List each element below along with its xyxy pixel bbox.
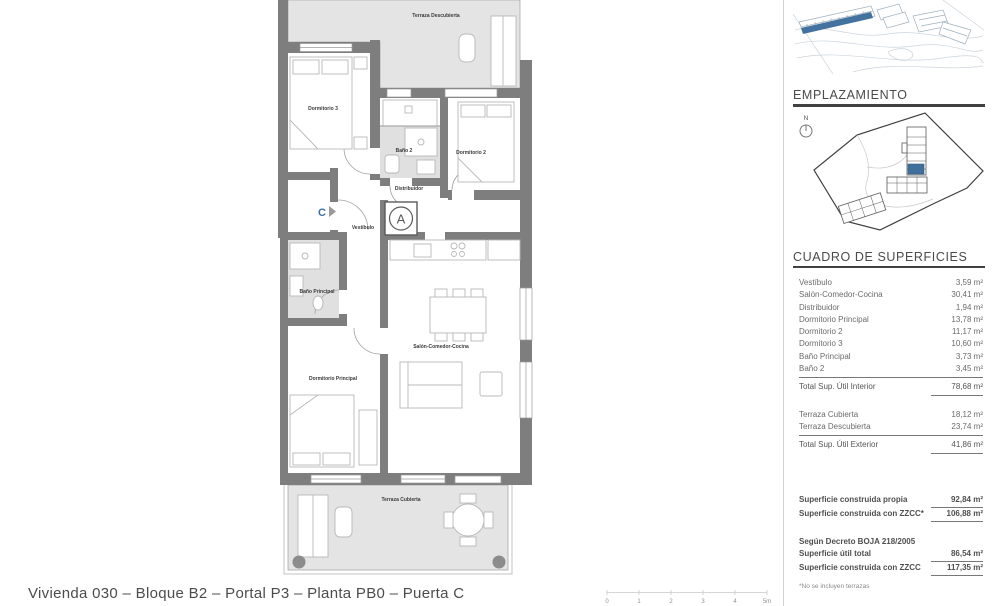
entrance-arrow-icon: [329, 206, 336, 217]
row-label: Superficie construida con ZZCC: [799, 562, 921, 574]
surface-table: Vestíbulo 3,59 m² Salón-Comedor-Cocina 3…: [793, 277, 985, 454]
row-value: 3,73 m²: [931, 351, 983, 363]
site-buildings: [838, 127, 927, 224]
row-label: Dormitorio Principal: [799, 314, 869, 326]
table-row: Distribuidor 1,94 m²: [799, 302, 983, 314]
row-label: Total Sup. Útil Interior: [799, 381, 875, 393]
side-table-icon: [459, 34, 475, 62]
bed-icon: [290, 57, 367, 149]
room-label-bano-principal: Baño Principal: [299, 289, 335, 295]
table-row: Dormitorio 3 10,60 m²: [799, 338, 983, 350]
row-label: Superficie construida propia: [799, 494, 907, 506]
spacer: [799, 396, 983, 409]
superficies-title: CUADRO DE SUPERFICIES: [793, 250, 985, 264]
table-row: Dormitorio Principal 13,78 m²: [799, 314, 983, 326]
row-value: 78,68 m²: [931, 381, 983, 395]
floorplan-sheet: A C Terraza Descubierta Dormitorio 3 Bañ…: [0, 0, 1001, 606]
site-boundary: [814, 113, 983, 230]
row-value: 23,74 m²: [931, 421, 983, 433]
room-label-bano-2: Baño 2: [396, 148, 413, 154]
row-label: Salón-Comedor-Cocina: [799, 289, 883, 301]
coffee-table-icon: [335, 507, 352, 537]
row-value: 30,41 m²: [931, 289, 983, 301]
row-label: Terraza Descubierta: [799, 421, 871, 433]
summary-row: Superficie útil total 86,54 m²: [799, 548, 983, 562]
table-row: Dormitorio 2 11,17 m²: [799, 326, 983, 338]
row-value: 1,94 m²: [931, 302, 983, 314]
dining-table-icon: [430, 289, 486, 341]
table-row: Terraza Cubierta 18,12 m²: [799, 409, 983, 421]
row-value: 3,59 m²: [931, 277, 983, 289]
row-label: Dormitorio 3: [799, 338, 843, 350]
kitchen-sink-icon: [414, 244, 431, 257]
scale-label: 5m: [763, 599, 771, 605]
room-label-dormitorio-3: Dormitorio 3: [308, 106, 338, 112]
row-label: Baño Principal: [799, 351, 851, 363]
row-label: Superficie construida con ZZCC*: [799, 508, 924, 520]
table-row: Vestíbulo 3,59 m²: [799, 277, 983, 289]
unit-title: Vivienda 030 – Bloque B2 – Portal P3 – P…: [28, 585, 464, 602]
row-label: Terraza Cubierta: [799, 409, 858, 421]
summary-row: Superficie construida propia 92,84 m²: [799, 494, 983, 508]
row-value: 10,60 m²: [931, 338, 983, 350]
bed-icon: [458, 102, 514, 182]
table-row: Baño Principal 3,73 m²: [799, 351, 983, 363]
row-label: Total Sup. Útil Exterior: [799, 439, 878, 451]
row-value: 117,35 m²: [931, 562, 983, 576]
table-row: Salón-Comedor-Cocina 30,41 m²: [799, 289, 983, 301]
shaft-letter: A: [397, 212, 406, 227]
entrance-letter: C: [318, 207, 326, 219]
room-label-distribuidor: Distribuidor: [395, 186, 423, 192]
row-value: 41,86 m²: [931, 439, 983, 453]
table-row: Baño 2 3,45 m²: [799, 363, 983, 375]
entrance-marker: C: [318, 206, 336, 219]
row-value: 3,45 m²: [931, 363, 983, 375]
decreto-heading: Según Decreto BOJA 218/2005: [799, 536, 983, 548]
row-value: 13,78 m²: [931, 314, 983, 326]
title-underline: [793, 104, 985, 107]
shower-icon: [290, 243, 320, 269]
column-icon: [493, 556, 506, 569]
row-value: 18,12 m²: [931, 409, 983, 421]
site-map: N: [793, 111, 985, 236]
room-label-terraza-cubierta: Terraza Cubierta: [381, 497, 420, 503]
terrace-sofa-icon: [298, 495, 328, 557]
wardrobe-icon: [359, 410, 377, 465]
table-total-row: Total Sup. Útil Interior 78,68 m²: [799, 377, 983, 395]
room-label-dormitorio-2: Dormitorio 2: [456, 150, 486, 156]
emplazamiento-title: EMPLAZAMIENTO: [793, 88, 985, 102]
scale-label: 4: [733, 599, 737, 605]
toilet-icon: [385, 155, 399, 173]
scale-label: 0: [605, 599, 609, 605]
sidebar: EMPLAZAMIENTO N: [784, 0, 1001, 606]
north-arrow-icon: N: [800, 115, 812, 137]
room-label-dormitorio-principal: Dormitorio Principal: [309, 376, 358, 382]
row-label: Dormitorio 2: [799, 326, 843, 338]
summary-row: Superficie construida con ZZCC* 106,88 m…: [799, 508, 983, 522]
row-label: Baño 2: [799, 363, 824, 375]
kitchen-counter-icon: [390, 240, 520, 260]
lounge-sofa-icon: [491, 16, 516, 86]
row-value: 92,84 m²: [931, 494, 983, 508]
armchair-icon: [480, 372, 502, 396]
floor-plan: A C Terraza Descubierta Dormitorio 3 Bañ…: [273, 0, 535, 578]
north-label: N: [804, 115, 809, 122]
row-label: Distribuidor: [799, 302, 839, 314]
building-render-sketch: [793, 0, 985, 74]
scale-label: 1: [637, 599, 641, 605]
summary-row: Superficie construida con ZZCC 117,35 m²: [799, 562, 983, 576]
scale-ruler: [607, 590, 767, 595]
row-value: 11,17 m²: [931, 326, 983, 338]
built-surface-summary: Superficie construida propia 92,84 m² Su…: [793, 494, 985, 590]
column-icon: [293, 556, 306, 569]
room-label-terraza-descubierta: Terraza Descubierta: [412, 13, 460, 19]
title-underline: [793, 266, 985, 269]
toilet-icon: [313, 296, 323, 310]
shaft-symbol: A: [385, 202, 417, 235]
room-label-salon: Salón-Comedor-Cocina: [413, 344, 469, 350]
table-total-row: Total Sup. Útil Exterior 41,86 m²: [799, 435, 983, 453]
row-value: 106,88 m²: [931, 508, 983, 522]
row-label: Vestíbulo: [799, 277, 832, 289]
scale-label: 2: [669, 599, 673, 605]
room-label-vestibulo: Vestíbulo: [352, 225, 374, 231]
footnote: *No se incluyen terrazas: [799, 583, 983, 590]
highlighted-unit: [908, 164, 924, 174]
sofa-icon: [400, 362, 462, 408]
sink-icon: [417, 160, 435, 174]
row-label: Superficie útil total: [799, 548, 871, 560]
row-value: 86,54 m²: [931, 548, 983, 562]
scale-bar: 0 1 2 3 4 5m: [603, 589, 771, 606]
table-row: Terraza Descubierta 23,74 m²: [799, 421, 983, 433]
scale-label: 3: [701, 599, 705, 605]
bed-icon: [290, 395, 354, 467]
